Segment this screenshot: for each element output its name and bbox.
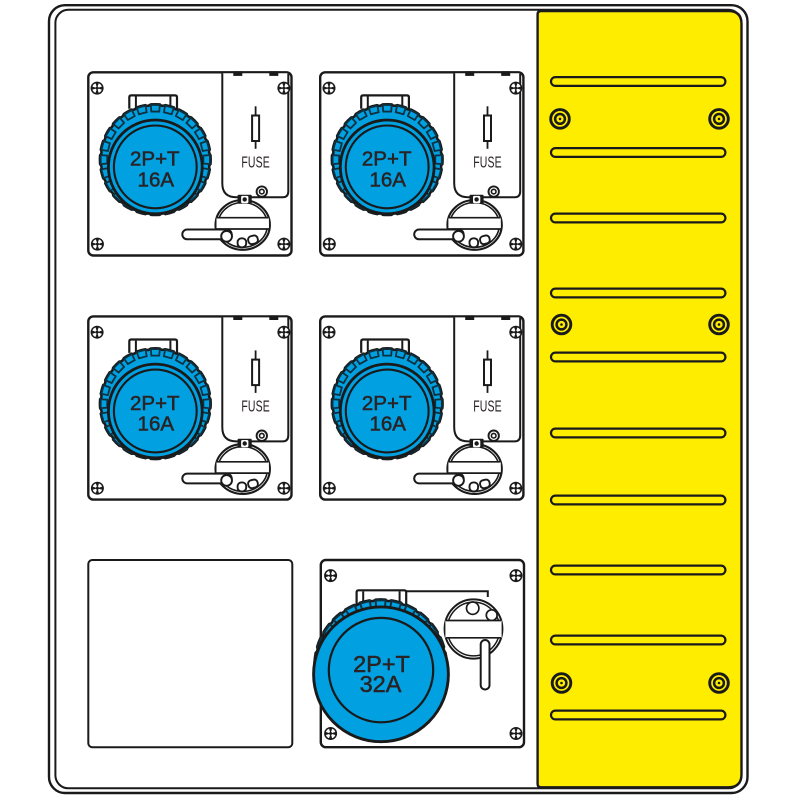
svg-text:16A: 16A	[138, 413, 175, 436]
svg-text:2P+T: 2P+T	[362, 392, 412, 415]
svg-text:16A: 16A	[138, 168, 175, 191]
svg-text:16A: 16A	[369, 168, 406, 191]
svg-text:FUSE: FUSE	[241, 155, 270, 172]
svg-text:FUSE: FUSE	[473, 155, 502, 172]
svg-text:2P+T: 2P+T	[130, 392, 180, 415]
svg-text:32A: 32A	[360, 671, 402, 697]
svg-text:FUSE: FUSE	[473, 399, 502, 416]
svg-text:2P+T: 2P+T	[362, 148, 412, 171]
svg-text:16A: 16A	[369, 413, 406, 436]
svg-text:2P+T: 2P+T	[130, 148, 180, 171]
svg-text:FUSE: FUSE	[241, 399, 270, 416]
